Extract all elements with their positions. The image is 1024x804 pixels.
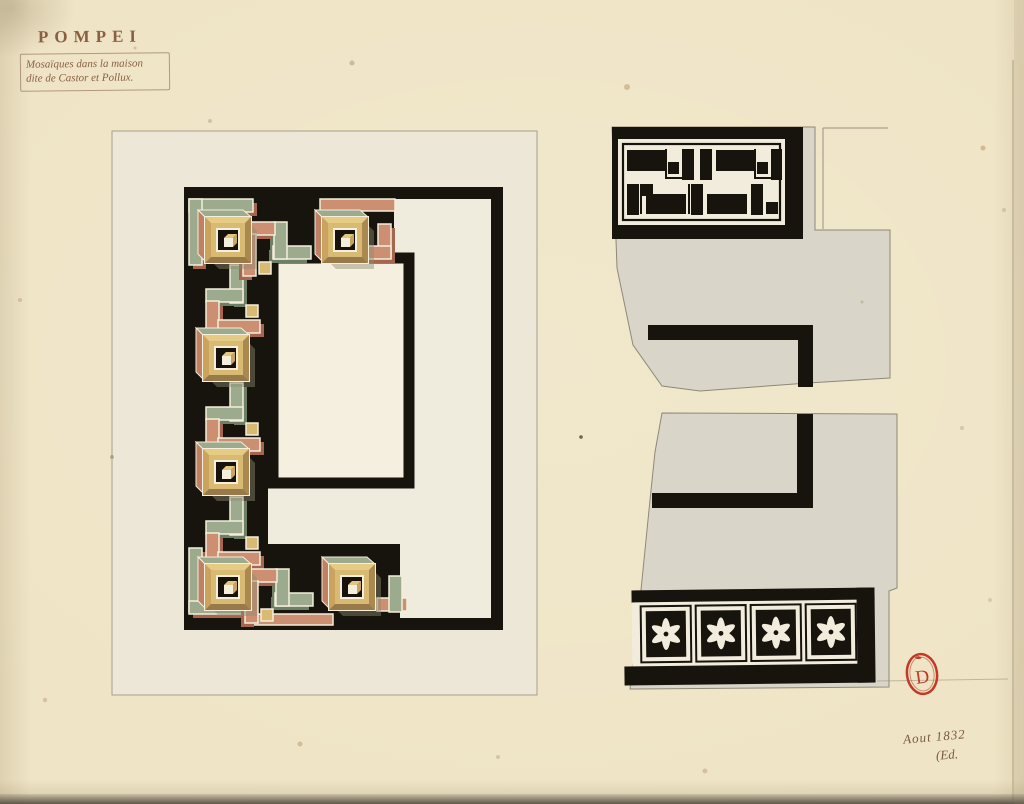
rosette-tile — [696, 605, 747, 662]
coffer-box — [198, 210, 257, 269]
coffer-box — [196, 442, 255, 501]
artwork-canvas: D — [0, 0, 1024, 804]
coffer-box — [196, 328, 255, 387]
page-title: POMPEI — [38, 27, 142, 48]
artist-monogram: (Ed. — [935, 746, 958, 763]
collection-stamp: D — [904, 652, 939, 696]
left-sheet — [112, 131, 537, 695]
stamp-letter: D — [914, 666, 931, 689]
paper-bottom-edge — [0, 794, 1024, 804]
key-meander-band — [612, 127, 803, 239]
pencil-guide-line — [877, 679, 1008, 681]
rosette-band — [623, 587, 875, 685]
rosette-tile — [806, 604, 857, 661]
inner-panel — [273, 258, 409, 483]
coffer-box — [315, 210, 374, 269]
caption-line-1: Mosaïques dans la maison — [26, 56, 164, 72]
paper-right-edge-shade — [1014, 0, 1024, 804]
coffer-box — [198, 557, 257, 616]
rosette-tile — [751, 604, 802, 661]
fragment-upper — [612, 127, 890, 391]
coffer-box — [322, 557, 381, 616]
rosette-tile — [641, 606, 692, 663]
caption-line-2: dite de Castor et Pollux. — [26, 71, 164, 87]
fragment-lower — [623, 413, 897, 689]
scanned-drawing-sheet: D POMPEI Mosaïques dans la maison dite d… — [0, 0, 1024, 804]
caption-box: Mosaïques dans la maison dite de Castor … — [20, 52, 170, 91]
